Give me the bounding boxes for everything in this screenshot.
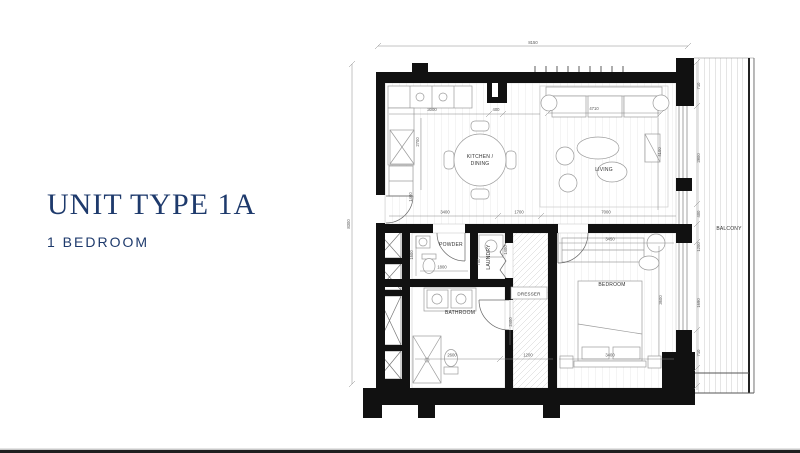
dim-laundry-depth: 1400 — [503, 245, 508, 255]
dim-kitchen-niche: 400 — [493, 107, 501, 112]
room-label-kitchen-line1: KITCHEN / — [467, 154, 494, 160]
dim-bathroom-depth: 2400 — [508, 317, 513, 327]
dim-bedroom-base: 3400 — [605, 353, 615, 358]
bottom-rule — [0, 448, 800, 453]
room-label-powder: POWDER — [439, 242, 463, 248]
room-label-bathroom: BATHROOM — [445, 310, 475, 316]
dim-bedroom-depth: 3600 — [658, 295, 663, 305]
dim-bedroom-top: 3450 — [605, 237, 615, 242]
room-label-bedroom: BEDROOM — [598, 282, 625, 288]
dim-laundry-width: 700 — [476, 258, 481, 266]
dim-powder-width: 1800 — [437, 265, 447, 270]
dim-sofa-width: 4710 — [589, 106, 599, 111]
room-label-balcony: BALCONY — [716, 226, 742, 232]
room-label-dresser: DRESSER — [517, 292, 541, 297]
dim-hall-base: 1200 — [523, 353, 533, 358]
room-label-laundry: LAUNDRY — [486, 244, 492, 270]
dim-overall-left: 8300 — [346, 219, 351, 229]
dim-kitchen-depth: 2700 — [415, 137, 420, 147]
dim-balcony-3: 400 — [696, 210, 701, 218]
dim-living-width: 7000 — [601, 210, 611, 215]
room-label-living: LIVING — [595, 167, 613, 173]
dim-balcony-5: 1690 — [696, 298, 701, 308]
top-wall-window-ticks — [535, 66, 623, 72]
dim-powder-depth: 1500 — [409, 250, 414, 260]
dim-balcony-1: 710 — [696, 82, 701, 90]
dim-hall-top: 1700 — [514, 210, 524, 215]
dim-balcony-6: 710 — [696, 349, 701, 357]
floor-plan: 8150 8300 3000 400 4710 2700 1400 3400 1… — [0, 0, 800, 453]
dim-living-depth: 4100 — [657, 147, 662, 157]
dim-balcony-4: 1200 — [696, 242, 701, 252]
dim-kitchen-run: 3000 — [427, 107, 437, 112]
dim-balcony-2: 2800 — [696, 153, 701, 163]
dim-overall-top: 8150 — [528, 40, 538, 45]
dim-kitchen-base: 3400 — [440, 210, 450, 215]
room-label-kitchen-line2: DINING — [471, 161, 490, 167]
dim-bathroom-width: 2600 — [447, 353, 457, 358]
dim-entry-width: 1400 — [408, 192, 413, 202]
